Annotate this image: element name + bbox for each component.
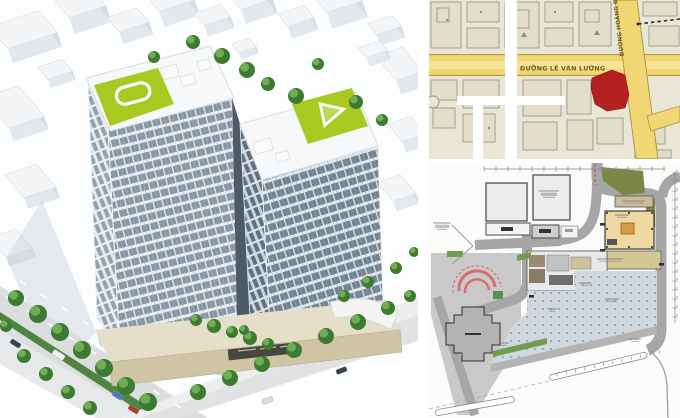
location-map-panel: ĐƯỜNG LÊ VĂN LƯƠNG ĐƯỜNG HOÀNG ĐẠO (429, 0, 680, 159)
tree-highlight (52, 324, 62, 334)
tree-highlight (319, 329, 328, 338)
stair-core (607, 239, 617, 245)
tree-highlight (405, 291, 412, 298)
project-site-plot (591, 70, 629, 111)
site-plan (429, 163, 680, 418)
tower-core (621, 223, 634, 234)
tree-highlight (18, 350, 26, 358)
level-mark (600, 223, 605, 226)
tree-highlight (289, 89, 298, 98)
tree-highlight (287, 343, 296, 352)
tree-highlight (313, 59, 320, 66)
tree-highlight (208, 320, 216, 328)
planter (493, 291, 503, 299)
tree-highlight (391, 263, 398, 270)
tree-highlight (240, 326, 246, 332)
tree-highlight (118, 378, 128, 388)
marketing-collage: ĐƯỜNG LÊ VĂN LƯƠNG ĐƯỜNG HOÀNG ĐẠO (0, 0, 680, 418)
tree-highlight (96, 360, 106, 370)
location-map: ĐƯỜNG LÊ VĂN LƯƠNG ĐƯỜNG HOÀNG ĐẠO (429, 0, 680, 159)
tower-left-front-face (108, 98, 238, 352)
tree-highlight (240, 63, 249, 72)
tree-highlight (149, 52, 156, 59)
tree-highlight (350, 96, 358, 104)
tree-highlight (255, 357, 264, 366)
tree-highlight (377, 115, 384, 122)
road-label-le-van-luong: ĐƯỜNG LÊ VĂN LƯƠNG (520, 64, 605, 73)
tree-highlight (410, 248, 416, 254)
tree-highlight (223, 371, 232, 380)
tree-highlight (191, 315, 198, 322)
tree-highlight (215, 49, 224, 58)
railway-node (637, 23, 640, 26)
aerial-render-panel (0, 0, 418, 418)
tree-highlight (62, 386, 70, 394)
level-mark (529, 295, 534, 298)
tree-highlight (30, 306, 40, 316)
tree-highlight (9, 291, 18, 300)
site-plan-panel (429, 163, 680, 418)
annex-block (615, 196, 653, 207)
roundabout (429, 96, 439, 108)
tree-highlight (191, 385, 200, 394)
tree-highlight (140, 394, 150, 404)
level-mark (659, 263, 664, 266)
tree-highlight (262, 78, 270, 86)
tower-left (86, 46, 238, 352)
tree-highlight (351, 315, 360, 324)
tree-highlight (363, 277, 370, 284)
tree-highlight (382, 302, 390, 310)
tree-highlight (84, 402, 92, 410)
cross-building (446, 307, 500, 361)
tree-highlight (263, 339, 270, 346)
tree-highlight (1, 321, 8, 328)
tower-footprint (605, 211, 654, 249)
tree-highlight (40, 368, 48, 376)
tree-highlight (227, 327, 234, 334)
aerial-render (0, 0, 418, 418)
tree-highlight (187, 36, 195, 44)
tree-highlight (339, 291, 346, 298)
tree-highlight (74, 342, 84, 352)
level-mark (600, 249, 605, 252)
